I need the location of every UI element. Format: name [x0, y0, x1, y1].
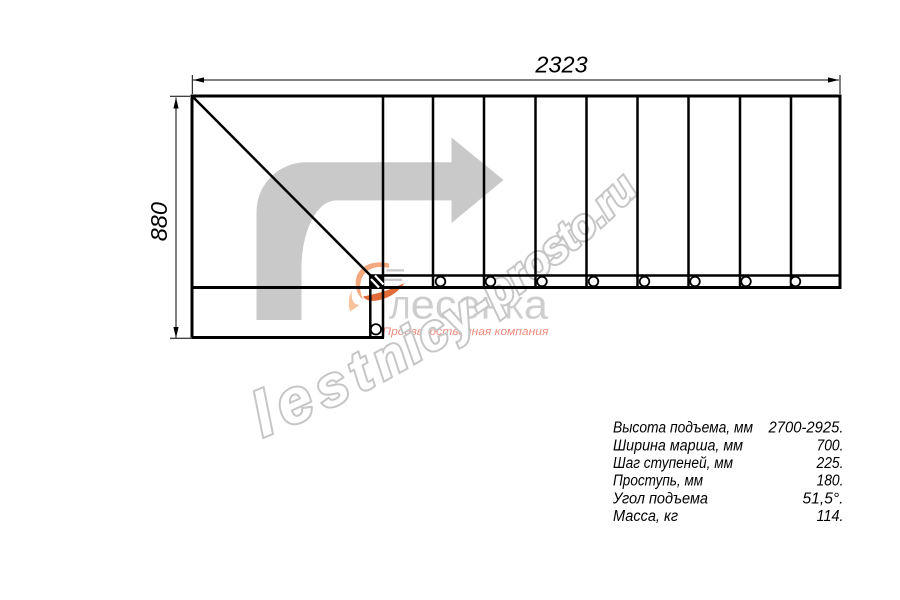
- svg-text:880: 880: [146, 202, 172, 241]
- svg-text:Высота подъема, мм: Высота подъема, мм: [613, 420, 753, 437]
- svg-text:114.: 114.: [817, 508, 844, 525]
- svg-text:700.: 700.: [817, 437, 844, 454]
- svg-text:180.: 180.: [817, 473, 844, 490]
- svg-text:Угол подъема: Угол подъема: [612, 490, 708, 507]
- svg-text:51,5°.: 51,5°.: [803, 490, 844, 507]
- svg-text:Ширина марша, мм: Ширина марша, мм: [613, 437, 743, 454]
- svg-text:Масса, кг: Масса, кг: [613, 508, 678, 525]
- svg-text:Шаг ступеней, мм: Шаг ступеней, мм: [613, 455, 733, 472]
- svg-text:2700-2925.: 2700-2925.: [768, 420, 844, 437]
- svg-text:225.: 225.: [816, 455, 844, 472]
- svg-text:2323: 2323: [534, 52, 587, 78]
- svg-text:Проступь, мм: Проступь, мм: [613, 473, 703, 490]
